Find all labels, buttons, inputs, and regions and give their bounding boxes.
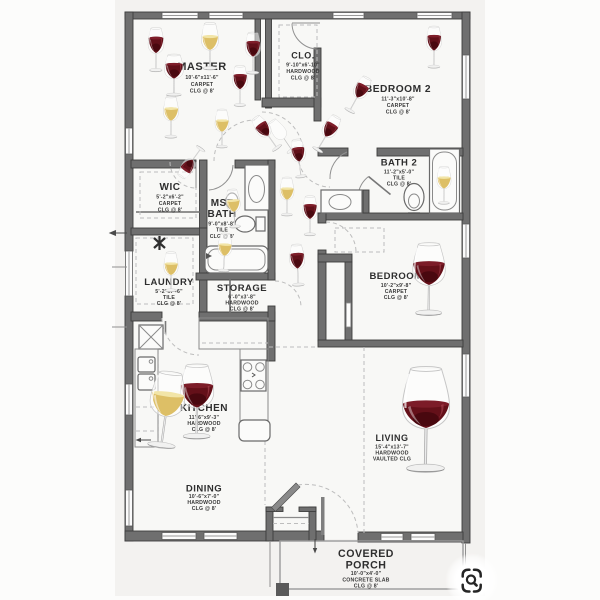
svg-text:10'-6"x11'-6": 10'-6"x11'-6" (185, 75, 219, 81)
svg-text:CLG @ 8': CLG @ 8' (230, 307, 255, 313)
svg-text:CLG @ 8': CLG @ 8' (190, 89, 215, 95)
svg-text:CLG @ 8': CLG @ 8' (158, 207, 183, 213)
svg-text:5'-2"x6'-2": 5'-2"x6'-2" (156, 195, 184, 201)
svg-text:COVERED: COVERED (338, 548, 394, 560)
svg-text:DINING: DINING (186, 484, 222, 495)
svg-text:STORAGE: STORAGE (217, 283, 267, 294)
svg-text:CLG @ 8': CLG @ 8' (384, 295, 409, 301)
svg-text:BATH 2: BATH 2 (381, 158, 418, 169)
svg-text:HARDWOOD: HARDWOOD (375, 451, 408, 457)
svg-text:9'-10"x6'-10": 9'-10"x6'-10" (286, 63, 320, 69)
svg-text:CLG @ 8': CLG @ 8' (157, 301, 182, 307)
svg-text:HARDWOOD: HARDWOOD (187, 421, 220, 427)
svg-text:WIC: WIC (160, 182, 181, 193)
svg-text:BEDROOM 2: BEDROOM 2 (365, 84, 431, 95)
svg-text:CLG @ 8': CLG @ 8' (354, 584, 379, 590)
svg-text:10'-0"x4'-0": 10'-0"x4'-0" (351, 571, 382, 577)
svg-text:11'-3"x10'-8": 11'-3"x10'-8" (381, 97, 415, 103)
svg-text:CLG @ 8': CLG @ 8' (192, 506, 217, 512)
svg-text:CARPET: CARPET (387, 103, 410, 109)
svg-text:11'-6"x9'-3": 11'-6"x9'-3" (189, 415, 220, 421)
svg-text:CLG @ 8': CLG @ 8' (387, 182, 412, 188)
svg-text:10'-2"x9'-8": 10'-2"x9'-8" (381, 283, 412, 289)
svg-text:CLG @ 8': CLG @ 8' (192, 427, 217, 433)
svg-text:TILE: TILE (216, 228, 228, 234)
svg-text:CARPET: CARPET (191, 82, 214, 88)
svg-text:LIVING: LIVING (375, 433, 408, 443)
svg-text:CARPET: CARPET (159, 201, 182, 207)
svg-text:CLO.: CLO. (291, 51, 315, 61)
svg-text:CONCRETE SLAB: CONCRETE SLAB (342, 577, 389, 583)
svg-text:LAUNDRY: LAUNDRY (144, 277, 194, 288)
svg-text:MASTER: MASTER (177, 61, 226, 73)
svg-text:15'-4"x13'-7": 15'-4"x13'-7" (375, 445, 409, 451)
svg-text:CLG @ 8': CLG @ 8' (386, 109, 411, 115)
svg-text:HARDWOOD: HARDWOOD (187, 500, 220, 506)
svg-text:PORCH: PORCH (346, 560, 387, 572)
svg-text:10'-6"x7'-0": 10'-6"x7'-0" (189, 494, 220, 500)
svg-text:CLG @ 8': CLG @ 8' (291, 75, 316, 81)
svg-text:VAULTED CLG: VAULTED CLG (373, 457, 411, 463)
svg-text:HARDWOOD: HARDWOOD (286, 69, 319, 75)
svg-text:CARPET: CARPET (385, 289, 408, 295)
